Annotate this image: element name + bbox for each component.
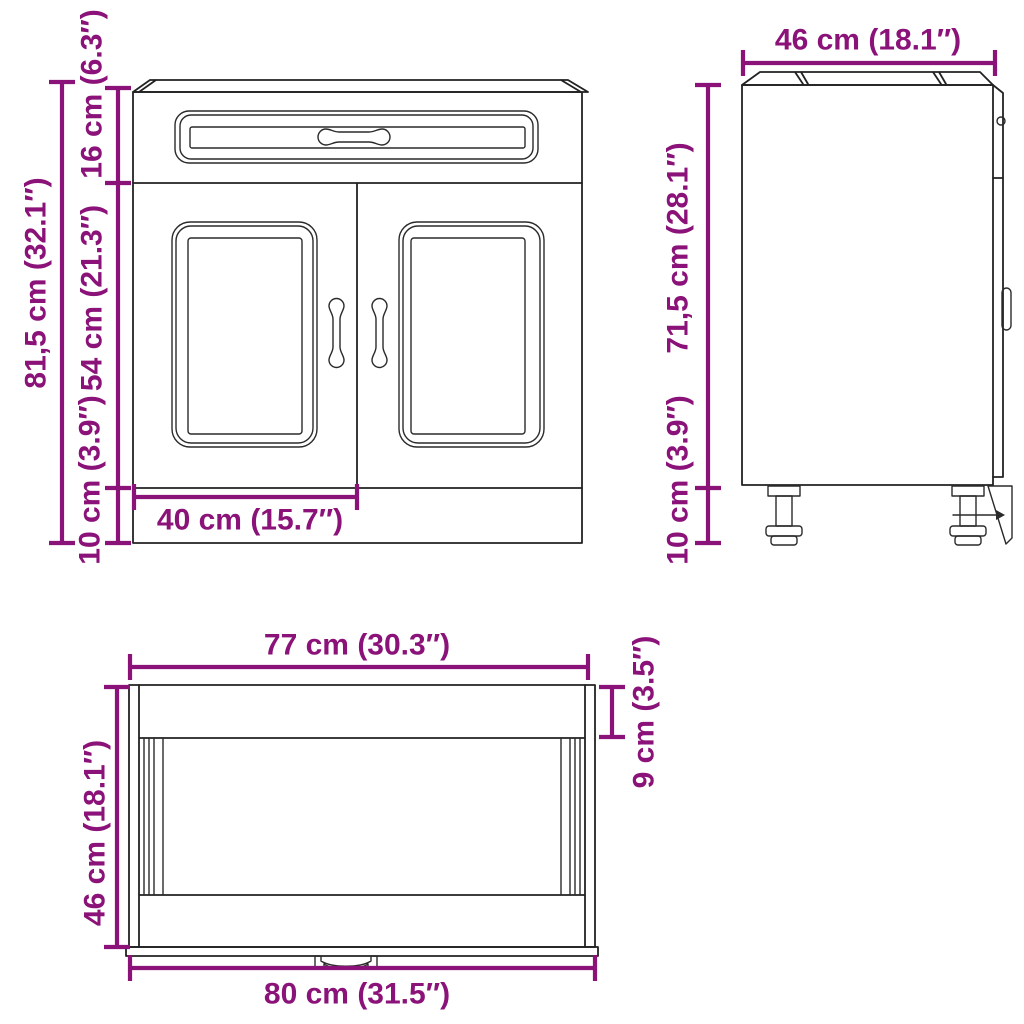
front-drawer-height-label: 16 cm (6.3″) <box>76 9 109 178</box>
top-rail-depth-dimline <box>599 687 625 737</box>
top-front-edge-strip <box>126 947 598 956</box>
side-depth-label: 46 cm (18.1″) <box>775 24 961 57</box>
top-inner-structure-lines <box>144 738 580 895</box>
leg-base <box>955 536 981 545</box>
top-width-label: 77 cm (30.3″) <box>264 629 450 662</box>
side-right-leg <box>950 486 1012 545</box>
leg-adjuster-arrow <box>996 510 1005 520</box>
top-total-width-label: 80 cm (31.5″) <box>264 978 450 1011</box>
drawer-inset-inner <box>190 127 525 148</box>
top-rail-depth-label: 9 cm (3.5″) <box>628 636 661 789</box>
right-door-inset-mid <box>403 226 540 443</box>
front-section-dimline <box>105 88 131 543</box>
drawer-inset-mid <box>180 115 533 159</box>
drawer-inset-outer <box>175 111 538 163</box>
top-rails-and-panels <box>139 685 585 947</box>
top-view: 77 cm (30.3″) 9 cm (3.5″) 46 cm (18.1″) … <box>79 629 661 1011</box>
leg-foot <box>766 526 802 536</box>
side-body-height-dimline <box>695 85 721 543</box>
leg-stem <box>960 496 976 526</box>
dimension-diagram: 81,5 cm (32.1″) 16 cm (6.3″) 54 cm (21.3… <box>0 0 1024 1024</box>
right-door-handle <box>372 299 387 368</box>
front-countertop <box>133 80 588 92</box>
side-top-face <box>742 72 993 85</box>
front-left-door <box>172 222 344 447</box>
front-drawer <box>175 111 538 163</box>
side-view: 46 cm (18.1″) 71,5 cm (28.1″) 10 cm (3.9… <box>662 24 1013 565</box>
right-door-inset-inner <box>411 238 525 434</box>
front-plinth-height-label: 10 cm (3.9″) <box>74 395 107 564</box>
front-dividers <box>133 183 582 488</box>
drawer-handle <box>318 129 390 145</box>
top-outline <box>129 685 595 947</box>
front-total-height-dimline <box>49 82 75 543</box>
side-front-edge-strip <box>993 85 1003 477</box>
leg-plate <box>952 486 984 496</box>
front-total-height-label: 81,5 cm (32.1″) <box>20 177 53 388</box>
top-depth-label: 46 cm (18.1″) <box>79 740 112 926</box>
front-door-width-label: 40 cm (15.7″) <box>157 504 343 537</box>
left-door-inset-mid <box>176 226 313 443</box>
leg-foot <box>950 526 986 536</box>
leg-base <box>771 536 797 545</box>
front-right-door <box>372 222 544 447</box>
leg-stem <box>776 496 792 526</box>
left-door-handle <box>329 299 344 368</box>
front-door-height-label: 54 cm (21.3″) <box>76 205 109 391</box>
left-door-inset-outer <box>172 222 317 447</box>
side-leg-height-label: 10 cm (3.9″) <box>662 395 695 564</box>
front-view: 81,5 cm (32.1″) 16 cm (6.3″) 54 cm (21.3… <box>20 9 589 564</box>
side-left-leg <box>766 486 802 545</box>
leg-plate <box>768 486 800 496</box>
left-door-inset-inner <box>188 238 302 434</box>
diagram-svg: 81,5 cm (32.1″) 16 cm (6.3″) 54 cm (21.3… <box>0 0 1024 1024</box>
side-body-height-label: 71,5 cm (28.1″) <box>662 142 695 353</box>
side-body <box>742 85 993 485</box>
right-door-inset-outer <box>399 222 544 447</box>
